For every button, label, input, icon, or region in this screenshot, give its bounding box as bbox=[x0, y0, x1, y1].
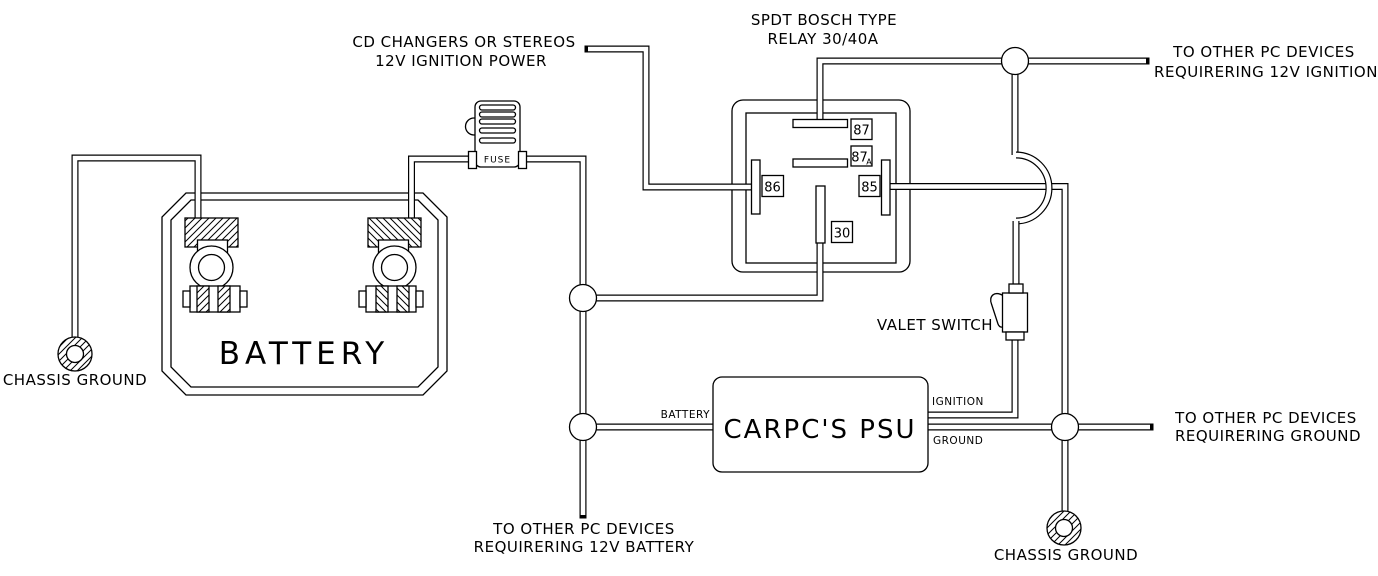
terminal-clamp-jaw bbox=[218, 286, 230, 312]
ground-lug-hole bbox=[1056, 520, 1073, 537]
valet-switch-body bbox=[1003, 293, 1028, 332]
chassis-ground-left-label: CHASSIS GROUND bbox=[3, 371, 147, 389]
terminal-ring-hole bbox=[199, 255, 225, 281]
psu-battery-input-label: BATTERY bbox=[661, 409, 710, 421]
terminal-bolt-cap bbox=[359, 291, 366, 307]
fuse-holder: FUSE bbox=[466, 101, 527, 169]
battery-title: BATTERY bbox=[219, 336, 389, 372]
relay-terminal-30-blade bbox=[816, 186, 825, 243]
ground-devices-label-line1: TO OTHER PC DEVICES bbox=[1174, 409, 1357, 427]
cd-source-label-line2: 12V IGNITION POWER bbox=[375, 52, 547, 70]
relay-title-line2: RELAY 30/40A bbox=[767, 30, 878, 48]
fuse-rib bbox=[480, 138, 516, 143]
junction-node-ground bbox=[1052, 414, 1079, 441]
valet-switch-label: VALET SWITCH bbox=[877, 316, 993, 334]
valet-switch-collar-top bbox=[1009, 284, 1023, 293]
psu-ignition-output-label: IGNITION bbox=[932, 396, 984, 408]
junction-node-battery-psu bbox=[570, 414, 597, 441]
wiring-diagram-canvas: 87 87 A 86 85 30 FUSE bbox=[0, 0, 1378, 576]
ground-lug-hole bbox=[67, 346, 84, 363]
relay-terminal-87a-suffix-label: A bbox=[866, 158, 872, 167]
psu-box: CARPC'S PSU bbox=[713, 377, 928, 472]
wire-relay-87-to-ignition-devices bbox=[820, 61, 1146, 124]
chassis-ground-lug-left bbox=[58, 337, 92, 371]
wire-node-to-relay-30 bbox=[583, 240, 820, 298]
terminal-bolt-cap bbox=[416, 291, 423, 307]
chassis-ground-lug-right bbox=[1047, 511, 1081, 545]
relay-terminals: 87 87 A 86 85 30 bbox=[752, 119, 891, 243]
terminal-clamp-jaw bbox=[397, 286, 409, 312]
fuse-collar-left bbox=[469, 152, 477, 169]
valet-switch-collar-bottom bbox=[1006, 332, 1024, 340]
relay-terminal-87a-blade bbox=[793, 159, 848, 167]
chassis-ground-right-label: CHASSIS GROUND bbox=[994, 546, 1138, 564]
relay-title-line1: SPDT BOSCH TYPE bbox=[751, 11, 897, 29]
terminal-clamp-jaw bbox=[197, 286, 209, 312]
junction-node-battery-relay bbox=[570, 285, 597, 312]
relay-terminal-30-label: 30 bbox=[834, 227, 851, 242]
terminal-bolt-cap bbox=[183, 291, 190, 307]
terminal-bolt-cap bbox=[240, 291, 247, 307]
relay-terminal-85-label: 85 bbox=[861, 181, 878, 196]
terminal-ring-hole bbox=[382, 255, 408, 281]
fuse-rib bbox=[480, 119, 516, 124]
fuse-label: FUSE bbox=[484, 156, 511, 166]
wire-battery-negative-to-chassis bbox=[75, 158, 198, 339]
battery-terminal-positive bbox=[359, 218, 423, 312]
fuse-rib bbox=[480, 112, 516, 117]
terminal-clamp-jaw bbox=[376, 286, 388, 312]
cd-source-label-line1: CD CHANGERS OR STEREOS bbox=[352, 33, 575, 51]
battery-terminal-negative bbox=[183, 218, 247, 312]
battery-devices-label-line1: TO OTHER PC DEVICES bbox=[492, 520, 675, 538]
relay-terminal-86-blade bbox=[752, 160, 761, 214]
relay-terminal-86-label: 86 bbox=[764, 181, 781, 196]
ignition-devices-label-line2: REQUIRERING 12V IGNITION bbox=[1154, 63, 1378, 81]
wire-battery-positive-feed bbox=[412, 159, 584, 515]
relay-terminal-87-label: 87 bbox=[853, 124, 870, 139]
psu-ground-output-label: GROUND bbox=[933, 435, 983, 447]
ignition-devices-label-line1: TO OTHER PC DEVICES bbox=[1172, 43, 1355, 61]
wire-cd-source-to-relay-86 bbox=[588, 49, 754, 187]
relay-terminal-85-blade bbox=[882, 160, 891, 215]
battery-devices-label-line2: REQUIRERING 12V BATTERY bbox=[474, 538, 695, 556]
relay-terminal-87-blade bbox=[793, 120, 848, 128]
fuse-rib bbox=[480, 128, 516, 133]
valet-switch bbox=[991, 284, 1028, 340]
ground-devices-label-line2: REQUIRERING GROUND bbox=[1175, 427, 1361, 445]
fuse-collar-right bbox=[519, 152, 527, 169]
psu-title: CARPC'S PSU bbox=[724, 415, 917, 445]
fuse-rib bbox=[480, 105, 516, 110]
junction-node-ignition bbox=[1002, 48, 1029, 75]
